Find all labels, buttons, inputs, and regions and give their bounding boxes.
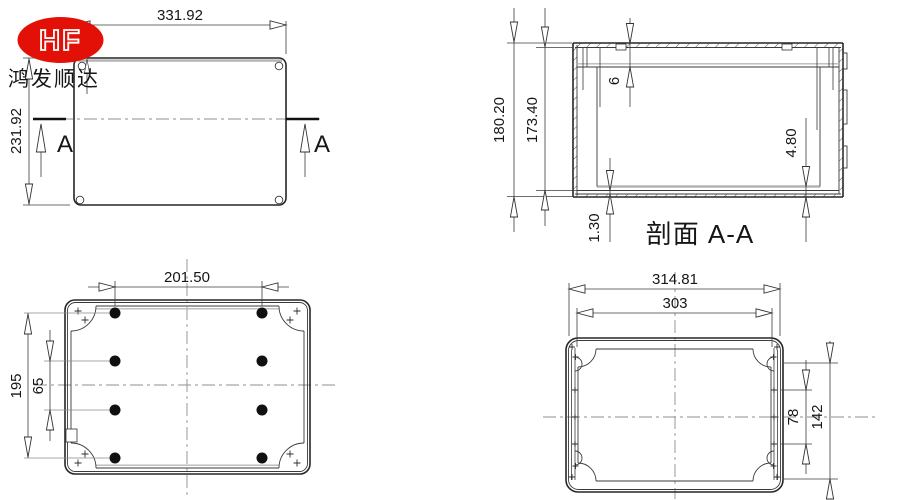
corner-boss-tl — [71, 306, 96, 331]
dim-width: 331.92 — [74, 7, 286, 54]
dim-overall-width-label: 314.81 — [652, 271, 698, 288]
section-arrow-left — [36, 124, 45, 152]
screw-marks — [569, 344, 780, 480]
dim-rib-step: 1.30 — [586, 158, 614, 243]
corner-boss-br — [279, 443, 304, 468]
dim-screw-spacing-outer-label: 142 — [809, 404, 826, 429]
lid-inner-outline — [65, 300, 310, 474]
dim-height-label: 231.92 — [8, 108, 25, 154]
screw-lobe — [767, 357, 774, 371]
corner-screws — [76, 62, 283, 204]
dim-width-label: 331.92 — [157, 7, 203, 24]
dim-hole-spacing-inner: 65 — [30, 330, 54, 441]
lid-hatch — [575, 44, 841, 48]
dim-base-thickness: 4.80 — [783, 118, 810, 242]
inner-cavity — [66, 306, 304, 468]
dim-hole-spacing-inner-label: 65 — [30, 378, 47, 395]
dim-rib-step-label: 1.30 — [586, 213, 603, 242]
boss-holes — [110, 308, 268, 464]
dim-screw-spacing-inner-label: 78 — [785, 409, 802, 426]
section-view: 180.20 173.40 6 4.80 — [491, 8, 847, 249]
company-name: 鸿发顺达 — [8, 68, 100, 91]
corner-screw-marks — [75, 308, 301, 467]
edge-notch — [66, 429, 77, 442]
section-title: 剖面 A-A — [646, 219, 755, 249]
dim-hole-spacing-h-label: 303 — [662, 295, 687, 312]
section-label-a-right: A — [314, 131, 330, 158]
dim-lid-thickness: 6 — [606, 18, 634, 107]
dim-hole-spacing-h-label: 201.50 — [164, 269, 210, 286]
base-inner-view: 314.81 303 78 142 — [543, 271, 876, 499]
base-outline — [566, 338, 783, 492]
drawing-sheet: 331.92 231.92 A A — [0, 0, 900, 500]
dim-hole-spacing-h: 303 — [577, 295, 772, 347]
hf-logo: HF — [18, 17, 104, 63]
section-label-a-left: A — [57, 131, 73, 158]
technical-drawing: 331.92 231.92 A A — [0, 0, 900, 500]
screw-lobe — [575, 357, 582, 371]
lid-notch-left — [616, 44, 626, 50]
left-wall-hatch — [574, 48, 578, 190]
dim-internal-height: 173.40 — [524, 8, 577, 226]
corner-boss-bl — [71, 443, 96, 468]
corner-boss-tr — [279, 306, 304, 331]
lid-inner-view: 201.50 195 65 — [8, 259, 336, 497]
dim-hole-spacing-v-label: 195 — [8, 373, 25, 398]
section-arrow-right — [300, 124, 309, 152]
lid-notch-right — [782, 44, 792, 50]
dim-base-thickness-label: 4.80 — [783, 128, 800, 157]
inner-cavity — [572, 348, 778, 481]
dim-hole-spacing-v: 195 — [8, 313, 32, 458]
logo-brand-text: HF — [39, 25, 82, 57]
lid-outline — [74, 58, 286, 205]
dim-overall-height-label: 180.20 — [491, 97, 508, 143]
dim-internal-height-label: 173.40 — [524, 97, 541, 143]
right-wall-hatch — [839, 48, 842, 190]
dim-lid-thickness-label: 6 — [606, 77, 623, 85]
